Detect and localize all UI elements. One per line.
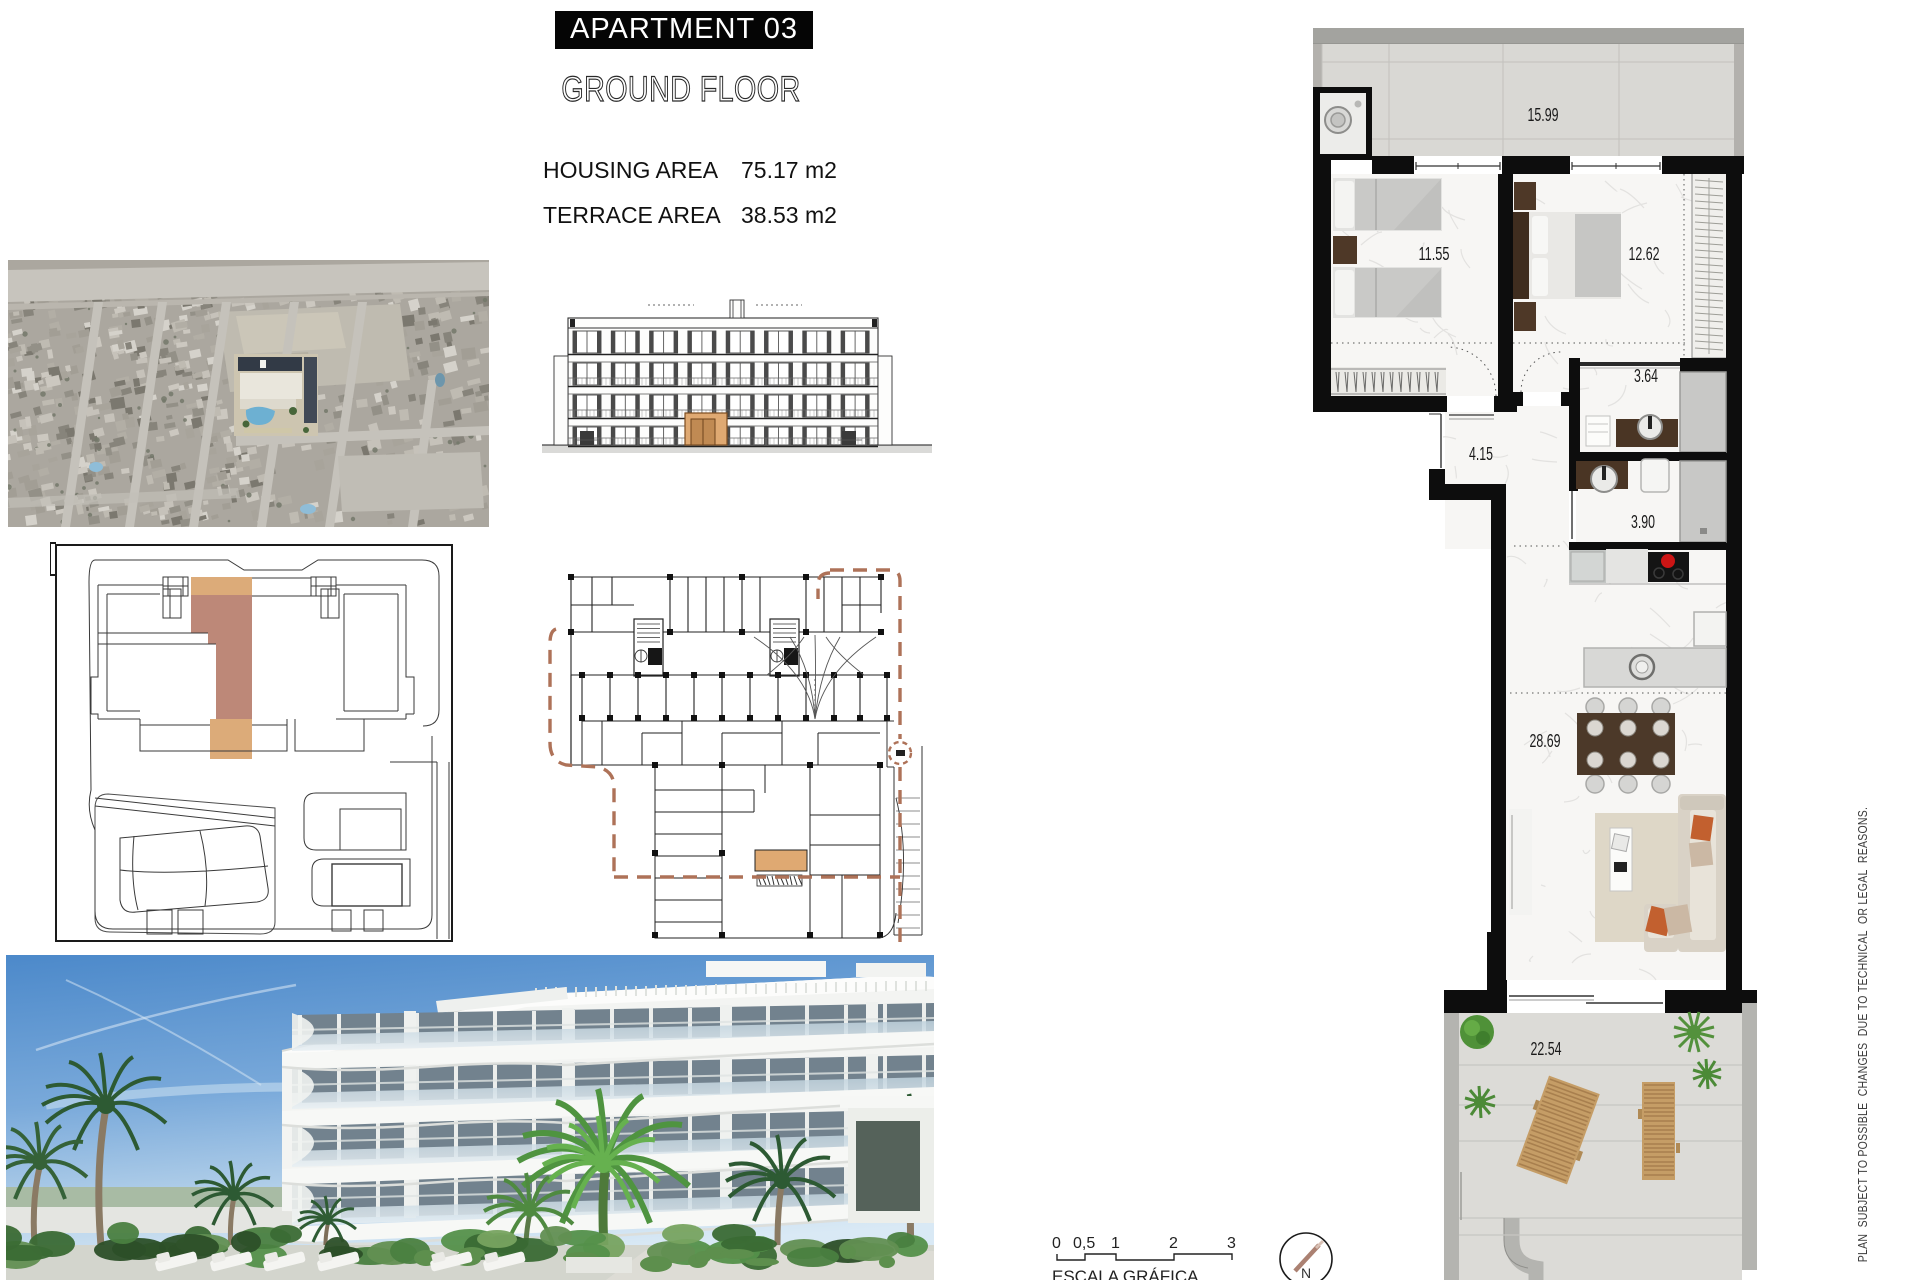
svg-text:11.55: 11.55 — [1419, 244, 1450, 264]
svg-text:ESCALA GRÁFICA: ESCALA GRÁFICA — [1052, 1267, 1199, 1280]
svg-text:22.54: 22.54 — [1531, 1039, 1562, 1059]
svg-text:3.64: 3.64 — [1634, 366, 1658, 386]
svg-text:3.90: 3.90 — [1631, 512, 1655, 532]
svg-text:4.15: 4.15 — [1469, 444, 1493, 464]
svg-text:2: 2 — [1169, 1235, 1178, 1252]
svg-text:28.69: 28.69 — [1530, 731, 1561, 751]
svg-text:15.99: 15.99 — [1528, 105, 1559, 125]
svg-text:0: 0 — [1052, 1235, 1061, 1252]
svg-text:N: N — [1301, 1265, 1311, 1280]
svg-text:3: 3 — [1227, 1235, 1236, 1252]
svg-text:0,5: 0,5 — [1073, 1235, 1095, 1252]
svg-text:1: 1 — [1111, 1235, 1120, 1252]
svg-text:12.62: 12.62 — [1629, 244, 1660, 264]
